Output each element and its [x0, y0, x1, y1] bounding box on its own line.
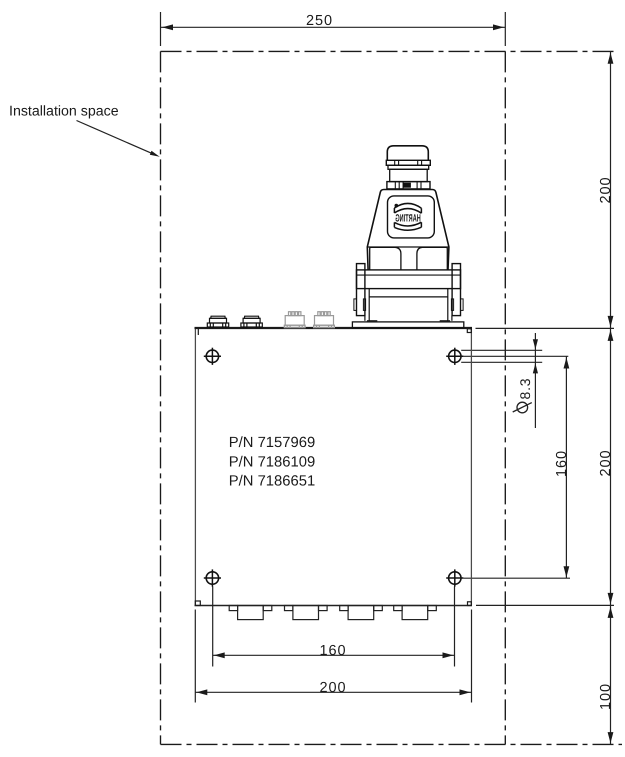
svg-text:160: 160 — [320, 643, 347, 659]
svg-text:Installation space: Installation space — [9, 104, 119, 120]
svg-text:HARTING: HARTING — [395, 213, 421, 225]
svg-text:200: 200 — [320, 680, 347, 696]
svg-text:P/N 7157969: P/N 7157969 — [229, 435, 315, 451]
svg-text:100: 100 — [598, 683, 614, 710]
svg-text:200: 200 — [598, 177, 614, 204]
svg-text:250: 250 — [306, 13, 333, 29]
svg-text:P/N 7186109: P/N 7186109 — [229, 454, 315, 470]
svg-text:P/N 7186651: P/N 7186651 — [229, 474, 315, 490]
svg-text:200: 200 — [598, 450, 614, 477]
svg-text:8.3: 8.3 — [517, 378, 533, 400]
svg-text:160: 160 — [554, 450, 570, 477]
